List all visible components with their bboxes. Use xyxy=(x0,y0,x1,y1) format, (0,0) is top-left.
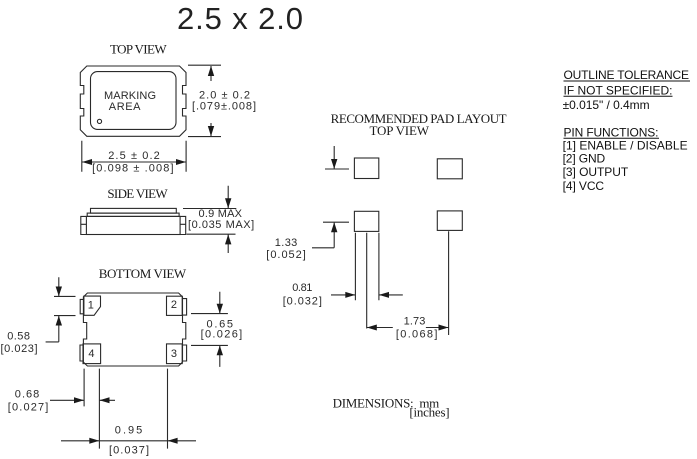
svg-text:3: 3 xyxy=(171,348,177,360)
svg-text:2.0 ± 0.2: 2.0 ± 0.2 xyxy=(199,89,250,101)
svg-text:1.73: 1.73 xyxy=(404,315,426,327)
svg-text:1: 1 xyxy=(88,300,94,312)
svg-text:[3] OUTPUT: [3] OUTPUT xyxy=(563,165,629,179)
svg-text:[0.052]: [0.052] xyxy=(266,249,306,261)
svg-text:[0.098 ± .008]: [0.098 ± .008] xyxy=(92,162,173,174)
svg-text:[0.068]: [0.068] xyxy=(396,328,438,340)
svg-text:[0.026]: [0.026] xyxy=(201,329,243,341)
svg-text:TOP VIEW: TOP VIEW xyxy=(110,42,167,57)
svg-text:AREA: AREA xyxy=(109,101,141,113)
svg-text:IF NOT SPECIFIED:: IF NOT SPECIFIED: xyxy=(564,84,673,98)
svg-text:BOTTOM VIEW: BOTTOM VIEW xyxy=(99,266,187,281)
svg-text:OUTLINE TOLERANCE: OUTLINE TOLERANCE xyxy=(564,68,690,82)
svg-text:0.81: 0.81 xyxy=(292,282,312,294)
svg-text:0.58: 0.58 xyxy=(7,330,30,342)
svg-text:[0.035 MAX]: [0.035 MAX] xyxy=(188,219,254,231)
svg-text:TOP VIEW: TOP VIEW xyxy=(370,123,430,138)
svg-text:[.079±.008]: [.079±.008] xyxy=(192,101,256,113)
svg-text:2: 2 xyxy=(171,299,177,311)
svg-text:0.95: 0.95 xyxy=(115,425,143,437)
svg-text:1.33: 1.33 xyxy=(275,237,298,249)
svg-text:4: 4 xyxy=(88,348,94,360)
svg-text:[0.027]: [0.027] xyxy=(8,401,49,413)
svg-text:PIN FUNCTIONS:: PIN FUNCTIONS: xyxy=(564,125,659,139)
svg-text:SIDE VIEW: SIDE VIEW xyxy=(107,186,168,201)
svg-text:[inches]: [inches] xyxy=(409,405,449,420)
svg-text:[4] VCC: [4] VCC xyxy=(563,179,605,193)
svg-text:[1] ENABLE / DISABLE: [1] ENABLE / DISABLE xyxy=(563,138,688,152)
svg-text:0.68: 0.68 xyxy=(15,389,40,401)
svg-text:2.5 ± 0.2: 2.5 ± 0.2 xyxy=(108,150,160,162)
svg-text:[0.023]: [0.023] xyxy=(1,343,38,355)
svg-text:±0.015" / 0.4mm: ±0.015" / 0.4mm xyxy=(563,98,650,112)
svg-text:[0.037]: [0.037] xyxy=(109,444,149,456)
svg-text:[0.032]: [0.032] xyxy=(283,295,322,307)
svg-text:[2] GND: [2] GND xyxy=(563,152,606,166)
svg-text:2.5 x 2.0: 2.5 x 2.0 xyxy=(177,1,303,36)
